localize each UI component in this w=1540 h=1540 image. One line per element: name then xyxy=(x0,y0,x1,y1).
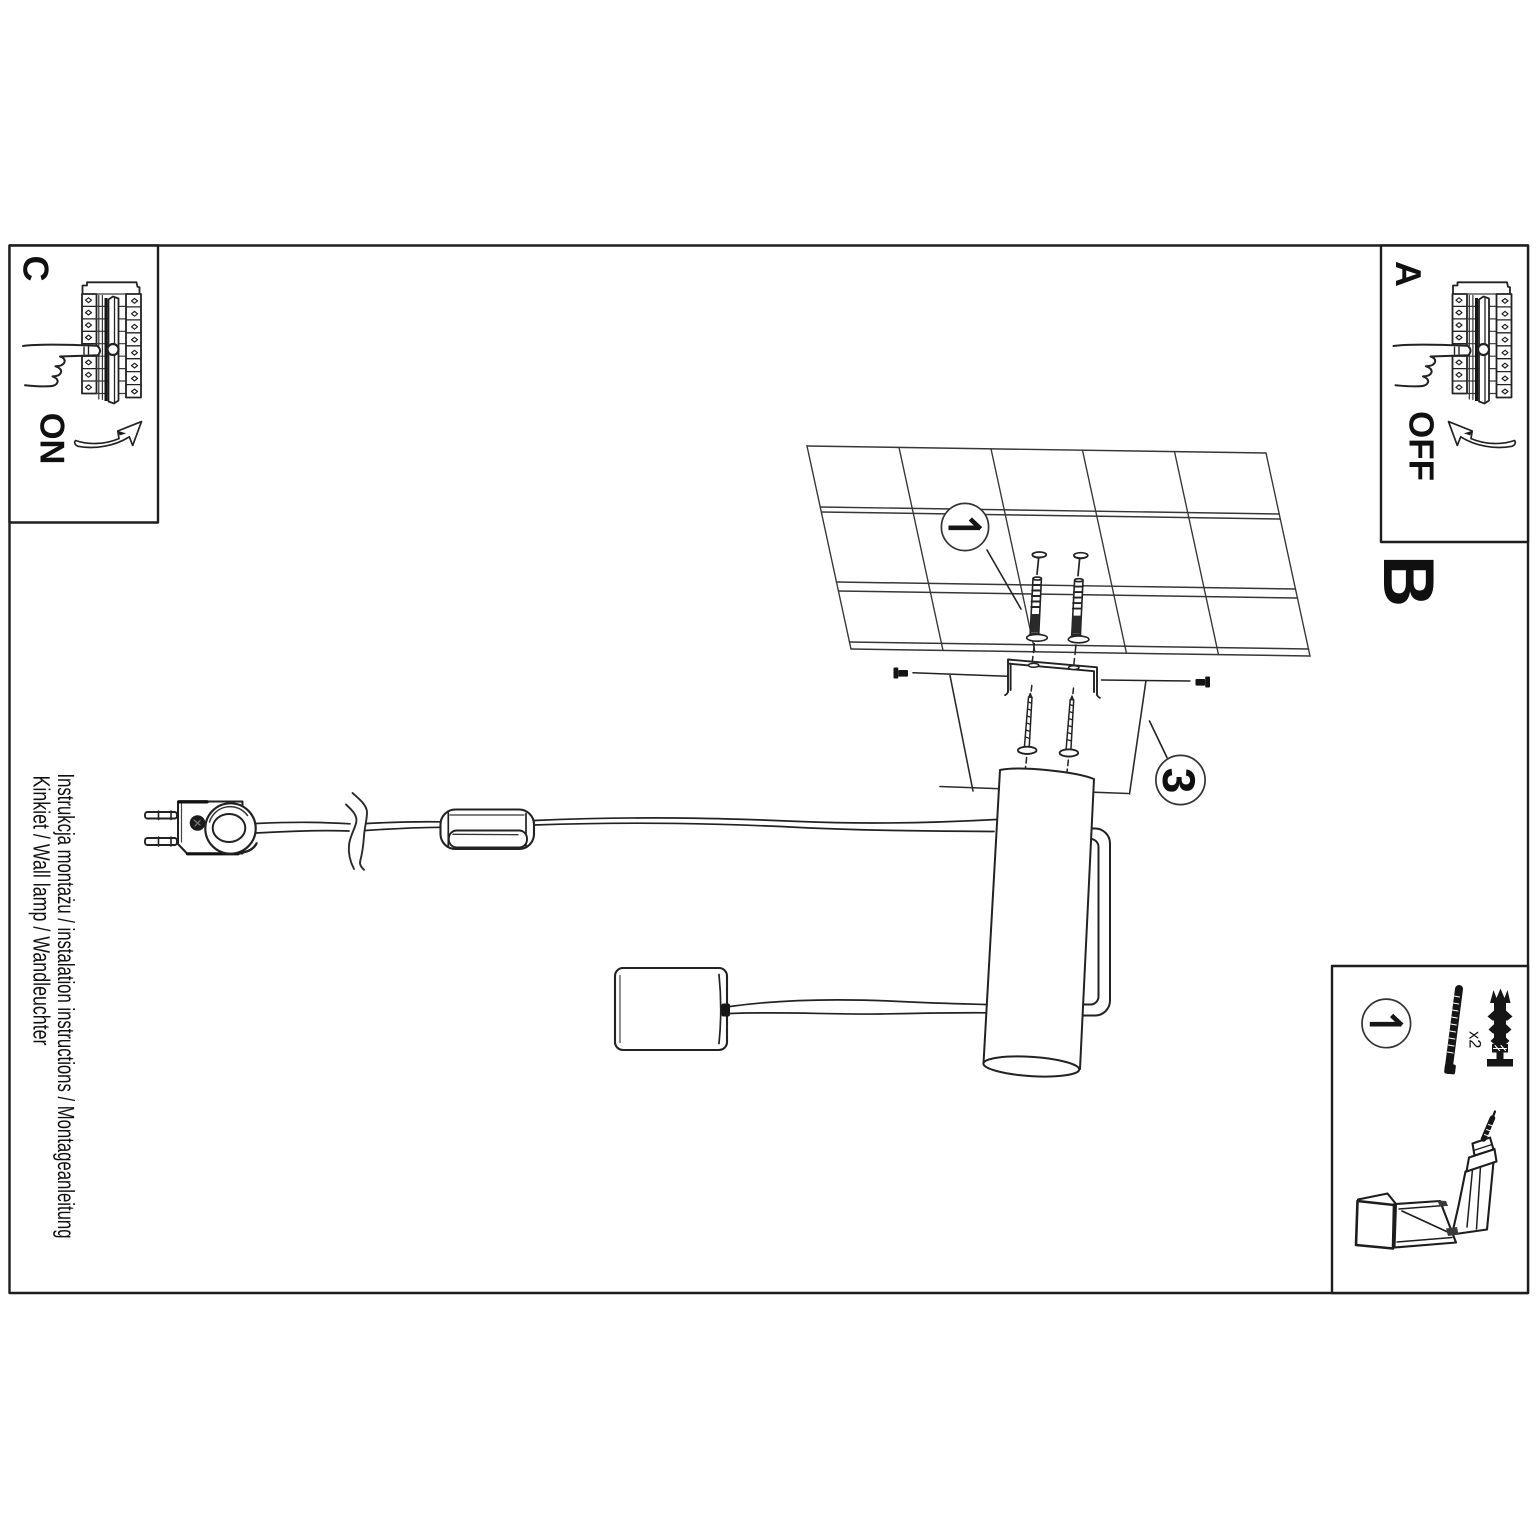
svg-text:Instrukcja montażu / instalati: Instrukcja montażu / instalation instruc… xyxy=(53,774,79,1239)
svg-text:ON: ON xyxy=(32,413,70,465)
svg-text:Kinkiet / Wall lamp / Wandleuc: Kinkiet / Wall lamp / Wandleuchter xyxy=(29,776,55,1046)
svg-text:3: 3 xyxy=(1153,768,1205,794)
svg-text:C: C xyxy=(16,256,57,282)
svg-text:x2: x2 xyxy=(1466,1031,1484,1048)
svg-text:A: A xyxy=(1388,261,1429,287)
svg-text:B: B xyxy=(1368,555,1448,607)
svg-text:OFF: OFF xyxy=(1402,411,1441,481)
